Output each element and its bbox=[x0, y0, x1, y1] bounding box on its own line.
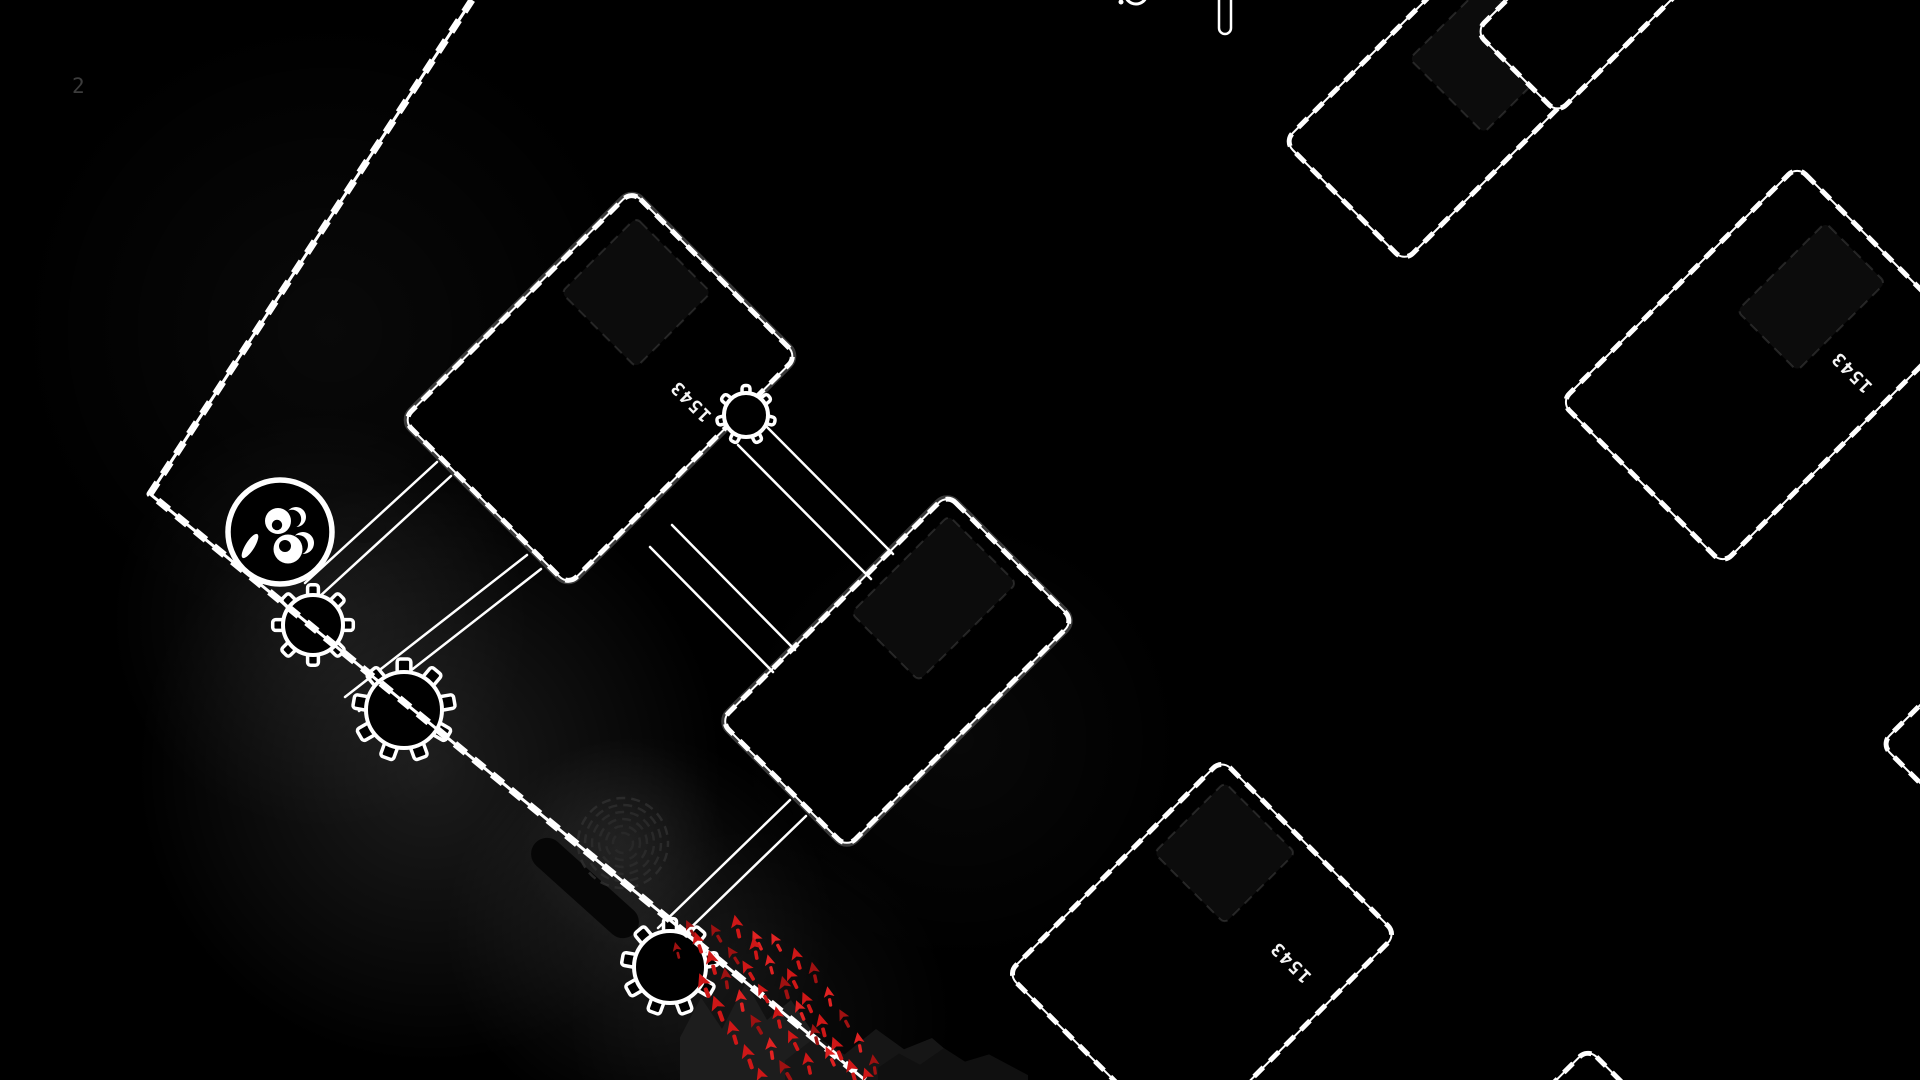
conveyor-rail bbox=[319, 476, 451, 597]
spike-tail bbox=[770, 1050, 775, 1060]
spike-arrow bbox=[797, 990, 817, 1016]
spike-arrow bbox=[706, 922, 726, 945]
spike-arrow bbox=[867, 1053, 881, 1075]
spike-arrow bbox=[806, 961, 822, 985]
spike-tail bbox=[807, 1065, 812, 1075]
spike-arrow bbox=[783, 1027, 804, 1053]
spike-head bbox=[788, 946, 803, 961]
spike-arrow bbox=[723, 1019, 743, 1047]
spike-head bbox=[867, 1053, 879, 1065]
spike-arrow bbox=[733, 988, 749, 1013]
spike-arrow bbox=[762, 953, 777, 976]
spike-tail bbox=[873, 1066, 877, 1075]
pupil bbox=[272, 520, 282, 530]
platform-block bbox=[1008, 760, 1397, 1080]
platform-block bbox=[1881, 560, 1920, 928]
spike-tail bbox=[748, 971, 756, 981]
conveyor-rail bbox=[658, 800, 790, 928]
gear-body bbox=[724, 393, 768, 437]
spike-tail bbox=[828, 998, 833, 1007]
block-outline-solid bbox=[403, 191, 798, 586]
spike-tail bbox=[732, 1034, 739, 1045]
spike-head bbox=[783, 1027, 799, 1043]
spike-head bbox=[852, 1031, 865, 1044]
spike-tail bbox=[747, 1058, 754, 1070]
spiral-portal bbox=[578, 798, 668, 888]
dot bbox=[1119, 0, 1124, 5]
spike-arrow bbox=[852, 1031, 866, 1053]
spike-tail bbox=[776, 943, 783, 952]
spike-head bbox=[806, 961, 820, 975]
spike-tail bbox=[792, 1041, 799, 1051]
spike-tail bbox=[844, 1019, 851, 1028]
spike-tail bbox=[806, 1004, 813, 1014]
gear-icon bbox=[621, 919, 718, 1015]
gear-body bbox=[366, 672, 442, 748]
spike-tail bbox=[813, 974, 818, 984]
spike-tail bbox=[777, 1019, 782, 1029]
spike-tail bbox=[791, 979, 798, 989]
spike-tail bbox=[717, 1010, 725, 1022]
spike-arrow bbox=[813, 1012, 831, 1038]
platform-block bbox=[1425, 1048, 1750, 1080]
hanging-pin bbox=[1219, 0, 1231, 34]
spike-tail bbox=[736, 928, 742, 939]
spike-head bbox=[723, 1019, 739, 1035]
spike-tail bbox=[725, 980, 730, 989]
platform-block bbox=[1561, 166, 1920, 564]
spike-arrow bbox=[728, 913, 745, 939]
spike-head bbox=[835, 1007, 850, 1022]
spiral-ring bbox=[613, 833, 633, 853]
spike-tail bbox=[784, 989, 790, 1000]
game-screen[interactable]: 154315431543 2 bbox=[0, 0, 1920, 1080]
spike-arrow bbox=[800, 1051, 817, 1076]
spike-tail bbox=[769, 966, 774, 975]
spike-head bbox=[706, 922, 721, 937]
game-world-canvas[interactable]: 154315431543 bbox=[0, 0, 1920, 1080]
spike-arrow bbox=[835, 1007, 854, 1030]
top-edge-decor bbox=[1119, 0, 1232, 34]
spike-head bbox=[723, 944, 738, 959]
spike-tail bbox=[740, 1002, 745, 1012]
level-counter: 2 bbox=[72, 74, 85, 98]
peek-circle bbox=[1125, 0, 1147, 4]
spike-arrow bbox=[738, 1042, 759, 1071]
spike-head bbox=[800, 1051, 814, 1065]
spike-head bbox=[813, 1012, 828, 1027]
spike-tail bbox=[821, 1027, 827, 1038]
spike-tail bbox=[756, 1025, 764, 1035]
spiral-ring bbox=[585, 805, 661, 881]
spike-head bbox=[797, 990, 813, 1006]
spike-arrow bbox=[776, 974, 794, 1001]
gear-icon bbox=[716, 385, 775, 443]
spike-arrow bbox=[764, 1036, 779, 1060]
spike-tail bbox=[799, 1012, 806, 1022]
spike-arrow bbox=[822, 985, 836, 1007]
spike-head bbox=[753, 1066, 768, 1080]
spike-arrow bbox=[753, 1066, 772, 1080]
spike-head bbox=[774, 1057, 791, 1074]
spiral-ring bbox=[606, 826, 640, 860]
spike-head bbox=[745, 1011, 761, 1027]
spike-arrow bbox=[707, 993, 730, 1024]
spike-tail bbox=[785, 1071, 793, 1080]
spike-tail bbox=[858, 1044, 863, 1053]
pupil bbox=[279, 540, 291, 552]
spike-head bbox=[767, 931, 782, 946]
spike-head bbox=[738, 1042, 755, 1059]
spike-tail bbox=[733, 956, 740, 965]
spike-head bbox=[737, 957, 753, 973]
platform-block bbox=[403, 191, 798, 586]
spike-head bbox=[733, 988, 747, 1002]
spike-arrow bbox=[767, 931, 786, 954]
spike-tail bbox=[754, 950, 759, 960]
spike-head bbox=[764, 1036, 778, 1050]
spike-arrow bbox=[774, 1057, 797, 1080]
spike-tail bbox=[763, 994, 770, 1004]
spike-head bbox=[762, 953, 775, 966]
spike-tail bbox=[716, 934, 723, 943]
spike-head bbox=[822, 985, 835, 998]
spike-tail bbox=[796, 960, 802, 970]
spike-arrow bbox=[788, 946, 806, 971]
spike-arrow bbox=[745, 1011, 767, 1037]
spike-head bbox=[728, 913, 743, 928]
